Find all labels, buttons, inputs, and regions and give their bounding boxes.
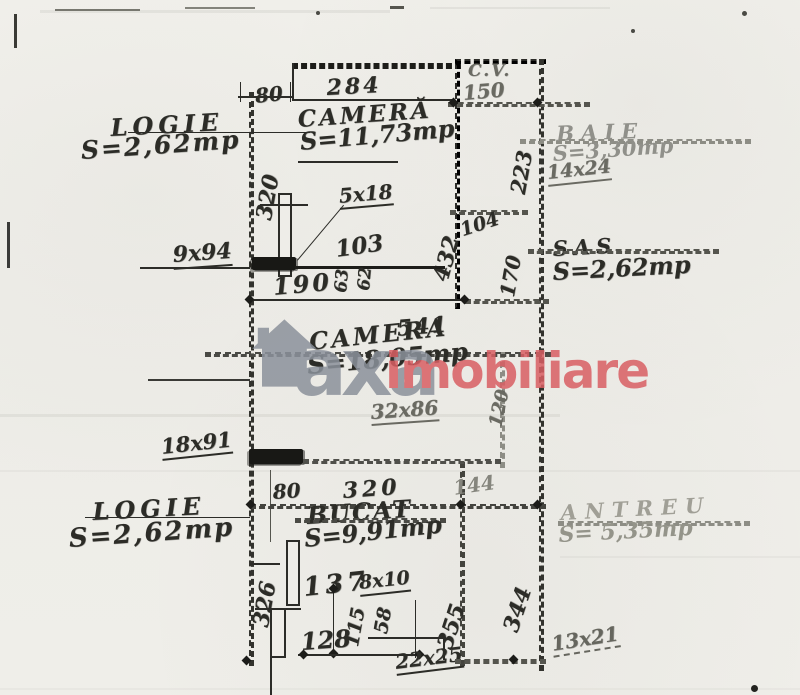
scan-streak bbox=[0, 688, 800, 690]
dim-13x21: 13x21 bbox=[550, 623, 621, 657]
dim-14x24: 14x24 bbox=[546, 157, 612, 187]
shelf-line bbox=[368, 637, 446, 639]
dim190-ext bbox=[465, 299, 549, 304]
camera-left-wall-tick bbox=[292, 63, 294, 101]
scan-dot bbox=[631, 29, 635, 33]
window-symbol-bottom-left bbox=[286, 540, 300, 606]
dim-62: 62 bbox=[356, 266, 375, 291]
dim-8x10: 8x10 bbox=[358, 569, 411, 597]
dim-103: 103 bbox=[334, 231, 385, 260]
right-main-wall bbox=[539, 59, 544, 671]
dim-170: 170 bbox=[497, 254, 524, 299]
line-9x94-ext bbox=[140, 267, 250, 269]
room-area-antreu: S= 5,35mp bbox=[558, 517, 693, 546]
tick-608 bbox=[255, 608, 301, 610]
scan-streak bbox=[430, 7, 610, 9]
dim80-tick bbox=[240, 82, 241, 102]
dim-9x94: 9x94 bbox=[172, 240, 233, 270]
scan-dot bbox=[742, 11, 747, 16]
scan-dot bbox=[316, 11, 320, 15]
scan-streak bbox=[560, 556, 800, 558]
scan-dot bbox=[751, 685, 758, 692]
dim-22x25: 22x25 bbox=[394, 644, 464, 676]
dim-344: 344 bbox=[500, 584, 535, 634]
dim-63: 63 bbox=[333, 268, 352, 293]
dim-128: 128 bbox=[300, 627, 352, 654]
dim-58: 58 bbox=[372, 606, 395, 635]
dim-144: 144 bbox=[452, 472, 496, 498]
room-area-sas: S=2,62mp bbox=[552, 253, 691, 284]
dim-5x18: 5x18 bbox=[338, 181, 394, 210]
scan-mark bbox=[55, 9, 140, 11]
edge-mark bbox=[7, 222, 10, 268]
scan-streak bbox=[0, 470, 800, 472]
wall-fill-top bbox=[252, 257, 296, 270]
dim-120: 120 bbox=[487, 388, 512, 428]
scan-mark bbox=[390, 6, 404, 9]
dim80-tick bbox=[290, 82, 291, 102]
dim-190: 190 bbox=[272, 270, 333, 299]
line-460 bbox=[303, 459, 501, 464]
scan-mark bbox=[185, 7, 255, 9]
floor-plan-scan: 80 284 C.V. 150 LOGIE S=2,62mp CAMERĂ S=… bbox=[0, 0, 800, 695]
camera-top-area-underline bbox=[298, 161, 398, 163]
dim-223: 223 bbox=[507, 149, 535, 196]
dim-32x86: 32x86 bbox=[370, 397, 439, 426]
camera-top-wall bbox=[292, 63, 461, 69]
tick-563 bbox=[250, 563, 280, 565]
dim-284: 284 bbox=[326, 74, 382, 99]
door-symbol-bottom-left bbox=[270, 608, 286, 658]
corner-mark bbox=[14, 14, 17, 48]
line-660-right bbox=[455, 659, 546, 664]
dim-150: 150 bbox=[462, 79, 505, 103]
room-label-cv: C.V. bbox=[468, 63, 511, 80]
window-tick bbox=[260, 204, 308, 206]
dim-80-top: 80 bbox=[254, 83, 284, 106]
dim-80-bottom: 80 bbox=[272, 480, 301, 502]
stub-below-128 bbox=[270, 655, 272, 695]
dim-18x91: 18x91 bbox=[160, 429, 233, 461]
left-mid-line bbox=[148, 379, 250, 381]
scan-streak bbox=[0, 414, 560, 417]
wall-fill-bottom bbox=[249, 449, 303, 464]
room-area-logie-top: S=2,62mp bbox=[80, 127, 241, 163]
